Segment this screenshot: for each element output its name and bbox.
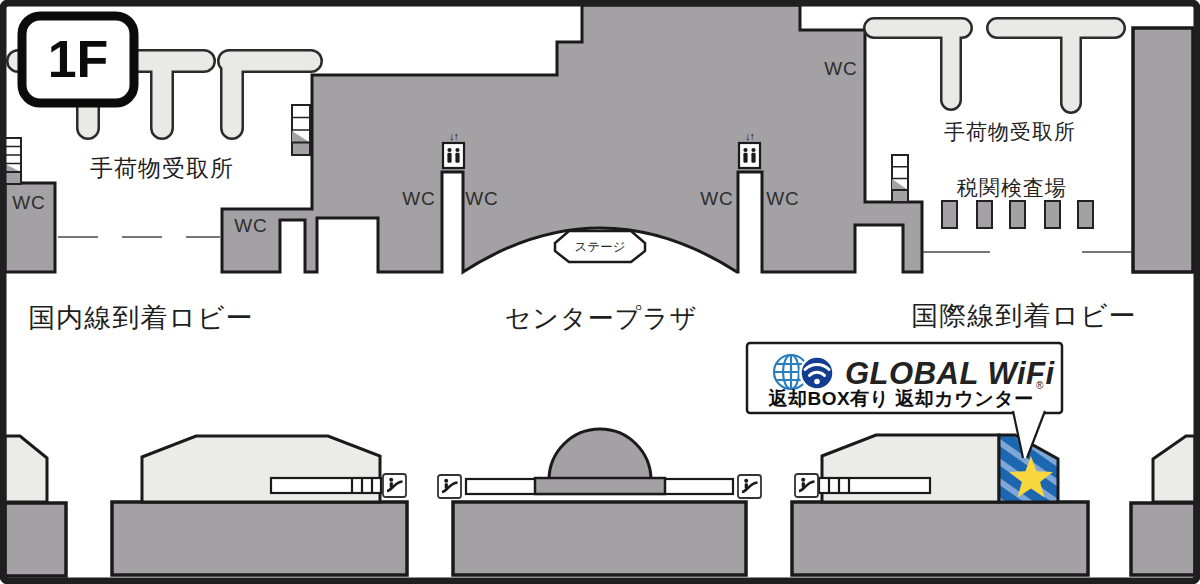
registered-mark: ® xyxy=(1036,380,1044,391)
airport-floor-map: ↓↑ ↓↑ xyxy=(0,0,1200,584)
label-wc: WC xyxy=(12,192,46,213)
person-glyph xyxy=(390,482,393,488)
person-glyph xyxy=(743,153,747,163)
person-glyph xyxy=(743,148,747,152)
escalator-icon xyxy=(795,474,818,497)
customs-booth xyxy=(1078,201,1093,228)
person-glyph xyxy=(389,478,393,482)
stairs-icon-left xyxy=(5,138,21,184)
label-wc: WC xyxy=(465,188,499,209)
escalator-icon xyxy=(438,475,461,498)
back-block xyxy=(792,502,1088,575)
callout-note: 返却BOX有り 返却カウンター xyxy=(767,388,1033,409)
right-wall-block xyxy=(1133,28,1193,272)
elevator-box xyxy=(443,143,464,168)
person-glyph xyxy=(751,153,755,163)
label-wc: WC xyxy=(700,188,734,209)
walkway-bar xyxy=(271,478,381,493)
elevator-arrows-icon: ↓↑ xyxy=(449,130,459,142)
label-center-plaza: センタープラザ xyxy=(505,303,698,333)
floor-badge: 1F xyxy=(22,16,134,103)
floor-badge-label: 1F xyxy=(48,30,109,88)
person-glyph xyxy=(751,148,755,152)
customs-booth xyxy=(1010,201,1025,228)
person-glyph xyxy=(745,483,748,489)
elevator-arrows-icon: ↓↑ xyxy=(745,130,755,142)
bottom-back-blocks xyxy=(5,502,1195,576)
label-baggage-claim-right: 手荷物受取所 xyxy=(944,120,1076,143)
escalator-icon xyxy=(738,475,761,498)
person-glyph xyxy=(447,148,451,152)
stairs-icon-right xyxy=(892,155,908,202)
back-block xyxy=(5,503,66,576)
back-block xyxy=(453,502,746,575)
person-glyph xyxy=(455,153,459,163)
label-wc: WC xyxy=(402,188,436,209)
dome-base xyxy=(535,478,665,494)
label-wc: WC xyxy=(824,58,858,79)
person-glyph xyxy=(447,153,451,163)
brand-wordmark: GLOBAL WiFi xyxy=(845,356,1055,391)
label-stage: ステージ xyxy=(575,240,626,254)
label-domestic-arrival-lobby: 国内線到着ロビー xyxy=(28,303,253,333)
person-glyph xyxy=(801,478,805,482)
walkway-bar xyxy=(819,478,930,493)
customs-booth xyxy=(942,201,957,228)
stairs-base xyxy=(5,172,21,184)
floor-map-canvas: ↓↑ ↓↑ xyxy=(0,0,1200,584)
person-glyph xyxy=(802,482,805,488)
back-block xyxy=(112,502,407,575)
label-wc: WC xyxy=(234,215,268,236)
customs-booth xyxy=(977,201,992,228)
customs-booth xyxy=(1045,201,1060,228)
escalator-icon xyxy=(383,474,406,497)
label-wc: WC xyxy=(766,188,800,209)
stairs-icon-center xyxy=(292,105,310,155)
wifi-icon xyxy=(801,357,834,390)
elevator-icon-right xyxy=(739,143,760,168)
stairs-base xyxy=(892,190,908,202)
elevator-box xyxy=(739,143,760,168)
person-glyph xyxy=(744,479,748,483)
wifi-dot xyxy=(814,379,820,385)
back-block xyxy=(1131,503,1195,575)
person-glyph xyxy=(445,483,448,489)
person-glyph xyxy=(444,479,448,483)
label-customs-inspection: 税関検査場 xyxy=(956,176,1067,199)
stairs-base xyxy=(292,143,310,156)
person-glyph xyxy=(455,148,459,152)
elevator-icon-left xyxy=(443,143,464,168)
label-international-arrival-lobby: 国際線到着ロビー xyxy=(911,301,1136,331)
label-baggage-claim-left: 手荷物受取所 xyxy=(90,155,234,181)
